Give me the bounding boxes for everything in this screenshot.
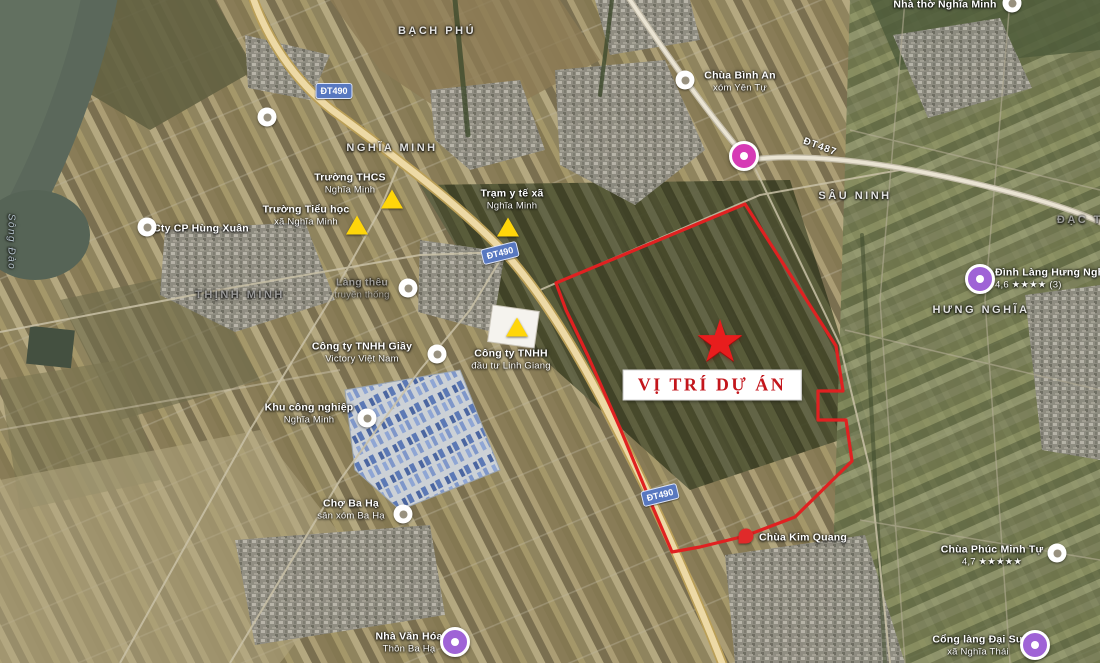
label-area-nghia-minh: Nghĩa Minh xyxy=(346,142,437,156)
label-chua-phuc-minh-tu-line1: Chùa Phúc Minh Tự xyxy=(941,544,1044,557)
label-cong-lang-dai-su-line1: Cổng làng Đại Sư xyxy=(932,634,1023,647)
label-nha-tho-nghia-minh[interactable]: Nhà thờ Nghĩa Minh xyxy=(893,0,996,12)
label-truong-tieu-hoc[interactable]: Trường Tiểu họcxã Nghĩa Minh xyxy=(263,204,350,229)
label-cty-hung-xuan-line1: Cty CP Hùng Xuân xyxy=(153,222,249,235)
marker-purple-cong-lang[interactable] xyxy=(1020,630,1050,660)
label-truong-tieu-hoc-line2: xã Nghĩa Minh xyxy=(263,217,350,229)
label-area-bach-phu-line1: Bạch Phú xyxy=(398,25,476,39)
marker-poi-chua-phuc-minh[interactable] xyxy=(1048,544,1067,563)
label-tram-y-te-line1: Trạm y tế xã xyxy=(480,188,543,201)
roadname-dt487: ĐT487 xyxy=(802,136,839,158)
label-cty-giay-victory[interactable]: Công ty TNHH GiầyVictory Việt Nam xyxy=(312,341,412,366)
marker-pink-junction[interactable] xyxy=(729,141,759,171)
marker-triangle-tieu-hoc[interactable] xyxy=(346,216,368,235)
label-area-bach-phu: Bạch Phú xyxy=(398,25,476,39)
label-cty-giay-victory-line2: Victory Việt Nam xyxy=(312,354,412,366)
label-lang-theu[interactable]: Làng thêutruyền thống xyxy=(334,277,389,302)
label-nha-tho-nghia-minh-line1: Nhà thờ Nghĩa Minh xyxy=(893,0,996,12)
label-nha-van-hoa-ba-ha-line2: Thôn Ba Hạ xyxy=(376,644,443,656)
label-area-thinh-minh: Thịnh Minh xyxy=(195,289,285,303)
label-cty-linh-giang-line1: Công ty TNHH xyxy=(471,348,550,361)
label-chua-phuc-minh-tu[interactable]: Chùa Phúc Minh Tự4,7 ★★★★★ xyxy=(941,544,1044,569)
label-cho-ba-ha[interactable]: Chợ Ba Hạsân xóm Ba Hạ xyxy=(317,498,385,523)
marker-poi-nha-tho[interactable] xyxy=(1003,0,1022,13)
shield-dt490-mid: ĐT490 xyxy=(480,241,520,265)
label-area-thinh-minh-line1: Thịnh Minh xyxy=(195,289,285,303)
shield-dt490-bottom: ĐT490 xyxy=(640,483,680,507)
label-truong-thcs-nghia-minh-line2: Nghĩa Minh xyxy=(314,185,386,197)
label-truong-thcs-nghia-minh[interactable]: Trường THCSNghĩa Minh xyxy=(314,172,386,197)
project-location-label: VỊ TRÍ DỰ ÁN xyxy=(623,370,802,401)
label-cty-hung-xuan[interactable]: Cty CP Hùng Xuân xyxy=(153,222,249,235)
label-area-sau-ninh: Sâu Ninh xyxy=(818,190,891,204)
label-chua-kim-quang-line1: Chùa Kim Quang xyxy=(759,531,847,544)
label-song-dao-line1: Sông Đào xyxy=(4,214,17,270)
label-dinh-lang-hung-nghia[interactable]: Đình Làng Hưng Nghĩa4,6 ★★★★ (3) xyxy=(995,267,1100,292)
label-cty-giay-victory-line1: Công ty TNHH Giầy xyxy=(312,341,412,354)
label-cong-lang-dai-su-line2: xã Nghĩa Thái xyxy=(932,647,1023,659)
marker-triangle-thcs[interactable] xyxy=(381,190,403,209)
label-khu-cong-nghiep-line1: Khu công nghiệp xyxy=(265,402,354,415)
label-tram-y-te-line2: Nghĩa Minh xyxy=(480,201,543,213)
label-lang-theu-line1: Làng thêu xyxy=(334,277,389,290)
marker-poi-hung-xuan[interactable] xyxy=(138,218,157,237)
marker-triangle-linh-giang[interactable] xyxy=(506,318,528,337)
label-truong-tieu-hoc-line1: Trường Tiểu học xyxy=(263,204,350,217)
label-area-dac-thu-line1: Đạc Thư xyxy=(1057,214,1100,228)
label-area-hung-nghia: Hưng Nghĩa xyxy=(932,304,1029,318)
marker-poi-chua-binh-an[interactable] xyxy=(676,71,695,90)
marker-poi-kcn[interactable] xyxy=(358,409,377,428)
marker-poi-cho-ba-ha[interactable] xyxy=(394,505,413,524)
label-truong-thcs-nghia-minh-line1: Trường THCS xyxy=(314,172,386,185)
label-chua-binh-an[interactable]: Chùa Bình Anxóm Yên Tự xyxy=(704,70,775,95)
label-area-hung-nghia-line1: Hưng Nghĩa xyxy=(932,304,1029,318)
marker-poi-victory[interactable] xyxy=(428,345,447,364)
label-area-dac-thu: Đạc Thư xyxy=(1057,214,1100,228)
label-nha-van-hoa-ba-ha[interactable]: Nhà Văn HóaThôn Ba Hạ xyxy=(376,631,443,656)
label-dinh-lang-hung-nghia-line2: 4,6 ★★★★ (3) xyxy=(995,280,1100,292)
label-cty-linh-giang-line2: đầu tư Linh Giang xyxy=(471,361,550,373)
label-chua-kim-quang[interactable]: Chùa Kim Quang xyxy=(759,531,847,544)
label-cho-ba-ha-line1: Chợ Ba Hạ xyxy=(317,498,385,511)
label-chua-binh-an-line1: Chùa Bình An xyxy=(704,70,775,83)
label-chua-phuc-minh-tu-line2: 4,7 ★★★★★ xyxy=(941,557,1044,569)
marker-poi-lang-theu[interactable] xyxy=(399,279,418,298)
label-area-nghia-minh-line1: Nghĩa Minh xyxy=(346,142,437,156)
marker-purple-dinh-lang[interactable] xyxy=(965,264,995,294)
label-khu-cong-nghiep-line2: Nghĩa Minh xyxy=(265,415,354,427)
marker-poi-road-bend[interactable] xyxy=(258,108,277,127)
label-song-dao: Sông Đào xyxy=(4,214,17,270)
label-chua-binh-an-line2: xóm Yên Tự xyxy=(704,83,775,95)
project-star-icon[interactable] xyxy=(694,313,746,371)
map-overlay: Trường THCSNghĩa MinhTrường Tiểu họcxã N… xyxy=(0,0,1100,663)
marker-triangle-tram-y-te[interactable] xyxy=(497,218,519,237)
label-cty-linh-giang[interactable]: Công ty TNHHđầu tư Linh Giang xyxy=(471,348,550,373)
label-khu-cong-nghiep[interactable]: Khu công nghiệpNghĩa Minh xyxy=(265,402,354,427)
label-area-sau-ninh-line1: Sâu Ninh xyxy=(818,190,891,204)
label-tram-y-te[interactable]: Trạm y tế xãNghĩa Minh xyxy=(480,188,543,213)
marker-purple-nha-van-hoa[interactable] xyxy=(440,627,470,657)
marker-red-chua-kim-quang[interactable] xyxy=(739,529,754,544)
label-nha-van-hoa-ba-ha-line1: Nhà Văn Hóa xyxy=(376,631,443,644)
label-dinh-lang-hung-nghia-line1: Đình Làng Hưng Nghĩa xyxy=(995,267,1100,280)
label-cho-ba-ha-line2: sân xóm Ba Hạ xyxy=(317,511,385,523)
shield-dt490-top: ĐT490 xyxy=(315,83,352,99)
label-cong-lang-dai-su[interactable]: Cổng làng Đại Sưxã Nghĩa Thái xyxy=(932,634,1023,659)
label-lang-theu-line2: truyền thống xyxy=(334,290,389,302)
satellite-map: Trường THCSNghĩa MinhTrường Tiểu họcxã N… xyxy=(0,0,1100,663)
